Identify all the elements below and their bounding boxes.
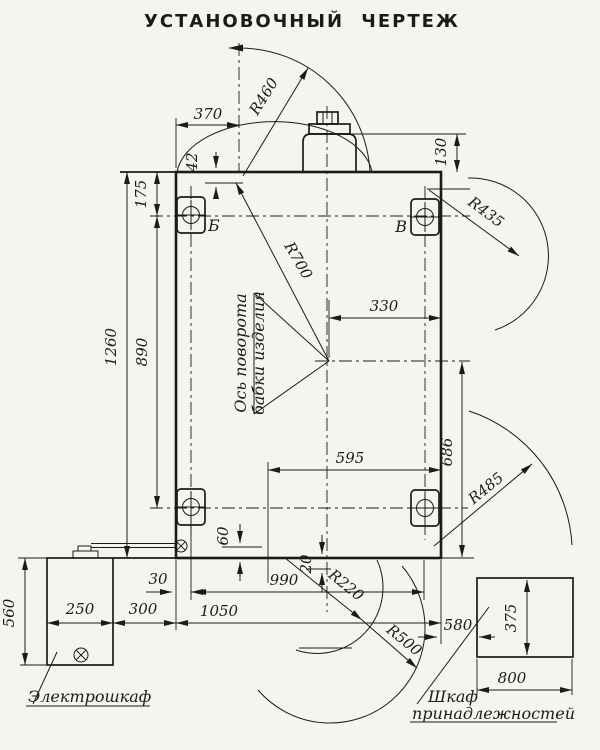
dim-1260: 1260 bbox=[102, 172, 127, 558]
radius-label-r700: R700 bbox=[280, 238, 316, 283]
dim-580: 580 bbox=[418, 616, 495, 637]
svg-text:300: 300 bbox=[129, 600, 158, 618]
dim-890: 890 bbox=[133, 216, 157, 508]
mounting-pads: Б В bbox=[176, 197, 440, 526]
svg-text:990: 990 bbox=[270, 571, 299, 589]
svg-text:370: 370 bbox=[194, 105, 223, 123]
pivot-label-line2: бабки изделия bbox=[249, 291, 268, 415]
drawing-canvas: УСТАНОВОЧНЫЙ ЧЕРТЕЖ bbox=[0, 0, 600, 750]
svg-text:60: 60 bbox=[214, 526, 232, 546]
radius-label-r460: R460 bbox=[245, 74, 282, 119]
svg-text:686: 686 bbox=[438, 437, 456, 466]
hole-label-b: Б bbox=[207, 216, 220, 235]
svg-text:580: 580 bbox=[444, 616, 473, 634]
svg-text:890: 890 bbox=[133, 337, 151, 366]
electrical-cabinet-label: Электрошкаф bbox=[26, 652, 151, 706]
pivot-label-line1: Ось поворота bbox=[231, 293, 250, 412]
radius-label-r220: R220 bbox=[324, 565, 367, 605]
svg-text:560: 560 bbox=[0, 598, 18, 627]
dim-375: 375 bbox=[502, 580, 527, 655]
svg-text:1050: 1050 bbox=[200, 602, 239, 620]
svg-text:375: 375 bbox=[502, 604, 520, 633]
svg-text:175: 175 bbox=[132, 180, 150, 209]
dim-800: 800 bbox=[477, 659, 572, 695]
drawing-title: УСТАНОВОЧНЫЙ ЧЕРТЕЖ bbox=[144, 10, 460, 32]
svg-text:1260: 1260 bbox=[102, 327, 120, 366]
accessory-cabinet-label: Шкаф принадлежностей bbox=[410, 607, 575, 723]
dim-250: 250 bbox=[47, 600, 113, 623]
mounting-pad-top-right bbox=[410, 199, 440, 235]
dim-175: 175 bbox=[132, 172, 157, 216]
svg-text:42: 42 bbox=[183, 152, 201, 172]
radius-label-r435: R435 bbox=[464, 192, 508, 231]
dim-330: 330 bbox=[329, 297, 441, 358]
svg-text:330: 330 bbox=[370, 297, 399, 315]
svg-text:800: 800 bbox=[498, 669, 527, 687]
radius-line-r485 bbox=[434, 464, 532, 546]
installation-drawing: УСТАНОВОЧНЫЙ ЧЕРТЕЖ bbox=[0, 0, 600, 750]
mounting-pad-bottom-right bbox=[410, 490, 440, 526]
svg-text:130: 130 bbox=[432, 137, 450, 166]
svg-text:20: 20 bbox=[297, 554, 315, 575]
svg-text:30: 30 bbox=[148, 570, 168, 588]
mounting-pad-top-left bbox=[176, 197, 206, 233]
pivot-axis-label: Ось поворота бабки изделия bbox=[231, 291, 329, 415]
dim-60: 60 bbox=[214, 524, 262, 581]
top-unit bbox=[303, 112, 356, 172]
dim-20: 20 bbox=[297, 535, 331, 592]
dim-300: 300 bbox=[113, 600, 176, 623]
dim-595: 595 bbox=[268, 449, 441, 583]
accessory-cabinet bbox=[477, 578, 573, 657]
hole-label-v: В bbox=[394, 217, 407, 236]
svg-text:Электрошкаф: Электрошкаф bbox=[28, 687, 151, 706]
svg-text:250: 250 bbox=[65, 600, 95, 618]
svg-text:595: 595 bbox=[336, 449, 365, 467]
dim-30: 30 bbox=[146, 570, 211, 592]
swing-dome-arc bbox=[177, 122, 372, 172]
arc-end-arrow bbox=[228, 45, 243, 52]
radius-label-r500: R500 bbox=[382, 620, 425, 660]
dim-560: 560 bbox=[0, 558, 52, 665]
svg-text:принадлежностей: принадлежностей bbox=[412, 704, 575, 723]
dim-42: 42 bbox=[183, 152, 243, 199]
